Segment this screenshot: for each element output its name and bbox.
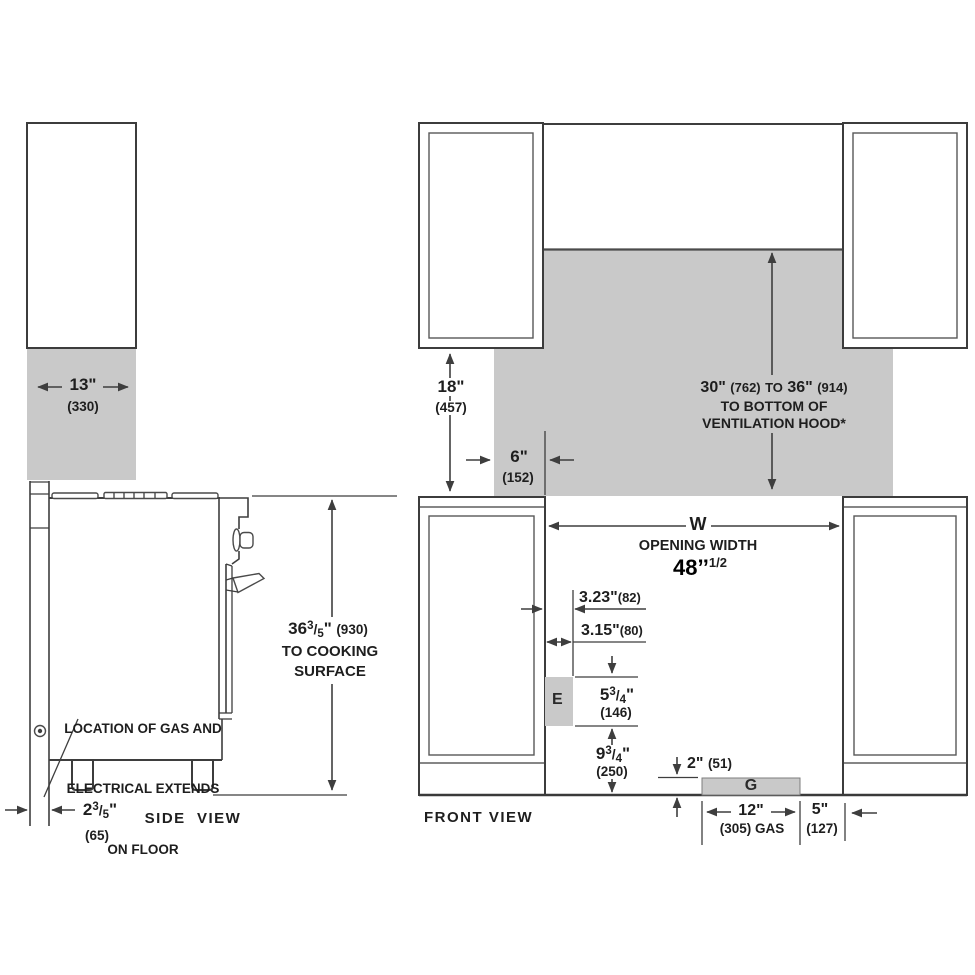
front-upper-cabinet-left [419, 123, 543, 348]
dim-36in-label: 363/5" (930) [288, 620, 368, 639]
hood-clearance-line3: VENTILATION HOOD* [702, 416, 846, 431]
installation-diagram: 13" (330) 363/5" (930) TO COOKING SURFAC… [0, 0, 975, 975]
front-view-label: FRONT VIEW [424, 810, 533, 826]
wall-lines [30, 481, 49, 826]
dim-e-floor-label: 93/4" [596, 745, 630, 764]
dim-315-label: 3.15"(80) [581, 623, 643, 640]
dim-36in-line2: TO COOKING [282, 644, 378, 660]
opening-width-value: 48’’1/2 [673, 556, 727, 580]
dim-gas-width-label: 12" [735, 803, 766, 820]
gas-electrical-note: LOCATION OF GAS AND ELECTRICAL EXTENDS O… [64, 678, 222, 901]
dim-6in-label: 6" [510, 448, 528, 466]
front-base-cabinet-left [419, 497, 545, 795]
electrical-box-label: E [552, 692, 563, 709]
side-upper-cabinet [27, 123, 136, 348]
front-base-cabinet-right [843, 497, 967, 795]
front-upper-cabinet-right [843, 123, 967, 348]
dim-18in-label: 18" [435, 378, 468, 396]
dim-323-label: 3.23"(82) [579, 590, 641, 607]
hood-clearance-line2: TO BOTTOM OF [721, 399, 828, 414]
dim-e-height-label: 53/4" [600, 686, 634, 705]
dim-back-gap-label: 23/5" [83, 801, 117, 820]
dim-36in-line3: SURFACE [294, 664, 366, 680]
opening-width-symbol: W [687, 515, 710, 534]
dim-6in-mm: (152) [502, 471, 534, 485]
dim-gas-right-mm: (127) [806, 822, 838, 836]
dim-13in-label: 13" [70, 376, 97, 394]
dim-gas-height-label: 2" (51) [687, 756, 732, 773]
dim-13in-mm: (330) [67, 400, 99, 414]
hood-clearance-area [494, 249, 893, 496]
dim-gas-right-label: 5" [812, 802, 828, 819]
dim-e-height-mm: (146) [600, 706, 632, 720]
dim-gas-width-mm: (305) GAS [720, 822, 785, 836]
gas-box-label: G [745, 778, 757, 795]
hood-clearance-line1: 30" (762) TO 36" (914) [700, 380, 847, 397]
dim-e-floor-mm: (250) [596, 765, 628, 779]
opening-width-label: OPENING WIDTH [639, 539, 757, 554]
dim-back-gap-mm: (65) [85, 829, 109, 843]
side-view-label: SIDE VIEW [145, 811, 242, 827]
dim-18in-mm: (457) [432, 401, 470, 415]
